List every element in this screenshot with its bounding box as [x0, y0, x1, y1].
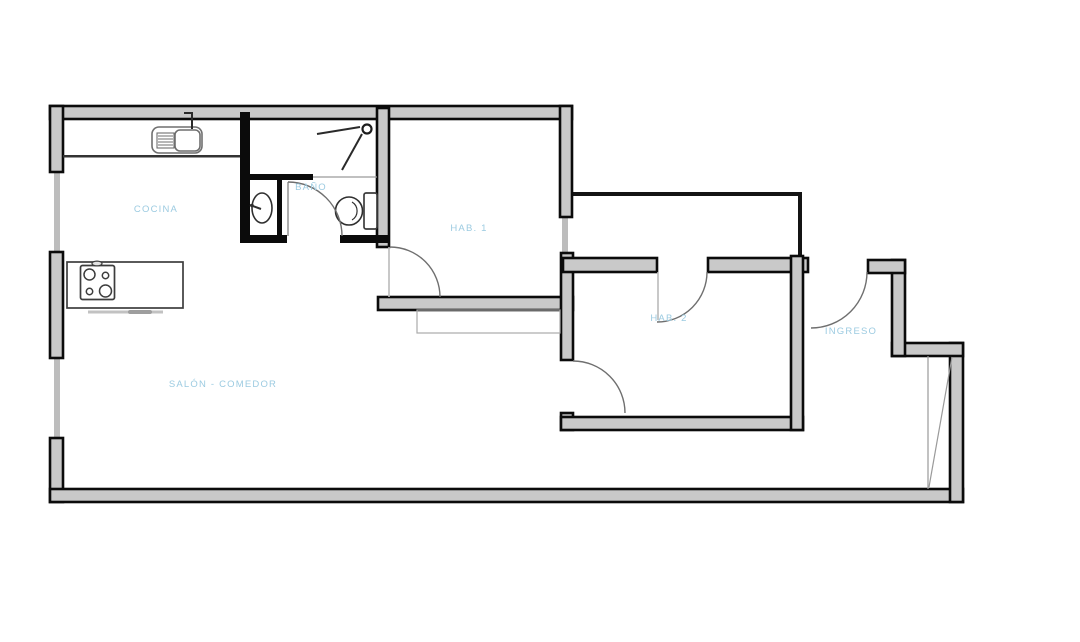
- island-counter: [67, 261, 183, 314]
- wall-entry-top: [868, 260, 905, 273]
- washbasin-tap-dot: [250, 204, 254, 208]
- boundary-line-top-right: [566, 194, 800, 260]
- entry-niche-diagonal: [929, 357, 952, 487]
- bathroom-sink-icon: [250, 193, 272, 223]
- shower-arm-1: [342, 134, 362, 170]
- shower-arm-2: [317, 127, 360, 134]
- shower-head: [363, 125, 372, 134]
- wall-top: [50, 106, 572, 119]
- label-hab2: HAB. 2: [650, 313, 687, 324]
- wall-hab1-bottom: [378, 297, 573, 310]
- walls: [50, 106, 963, 502]
- wall-hab2-right: [791, 256, 803, 430]
- label-hab1: HAB. 1: [450, 223, 487, 234]
- window-left-upper: [54, 170, 60, 254]
- wall-sink-divider: [277, 177, 282, 238]
- wall-left-upper: [50, 106, 63, 172]
- kitchen-counter-edge: [63, 155, 240, 158]
- label-bano: BAÑO: [295, 182, 327, 193]
- label-ingreso: INGRESO: [825, 326, 877, 337]
- ledge-below-hab1: [417, 310, 560, 333]
- hab1-door-arc: [390, 247, 440, 297]
- wall-bath-bottom-right: [340, 235, 389, 243]
- label-salon-comedor: SALÓN - COMEDOR: [169, 379, 277, 390]
- entry-door-arc: [811, 272, 867, 328]
- wall-entry-vertical: [892, 260, 905, 356]
- wall-hab2-top-left: [563, 258, 657, 272]
- window-hab1-right: [562, 215, 568, 255]
- toilet-icon: [336, 193, 378, 229]
- wall-bottom: [50, 489, 963, 502]
- washbasin: [252, 193, 272, 223]
- shower-icon: [317, 125, 372, 171]
- sink-basin: [175, 130, 200, 151]
- wall-right: [950, 343, 963, 502]
- wall-left-mid: [50, 252, 63, 358]
- toilet-tank: [364, 193, 377, 229]
- window-left-lower: [54, 356, 60, 440]
- wall-bath-right: [377, 108, 389, 247]
- island-shadow-center: [128, 310, 152, 314]
- floor-plan: COCINA BAÑO HAB. 1 HAB. 2 INGRESO SALÓN …: [0, 0, 1080, 642]
- hab2-left-door-arc: [573, 361, 625, 413]
- wall-hab2-bottom: [561, 417, 803, 430]
- stove-icon: [81, 261, 115, 299]
- stove-knob: [92, 261, 102, 266]
- wall-hab1-right: [560, 106, 572, 217]
- floor-plan-drawing: COCINA BAÑO HAB. 1 HAB. 2 INGRESO SALÓN …: [0, 0, 1080, 642]
- label-cocina: COCINA: [134, 204, 178, 215]
